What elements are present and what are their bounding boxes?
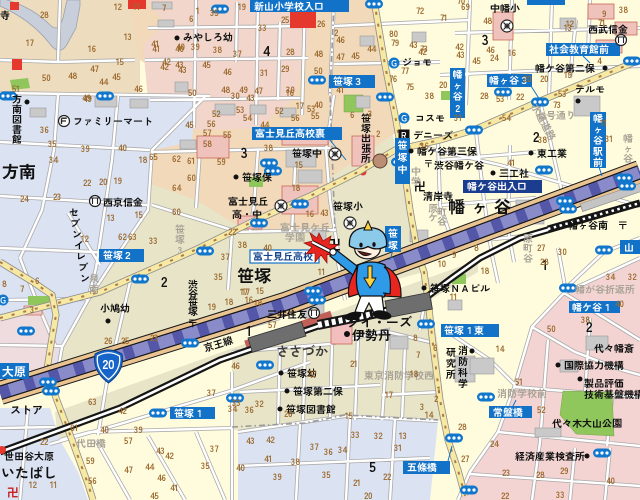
svg-text:44: 44: [145, 460, 154, 473]
svg-text:43: 43: [175, 58, 184, 71]
svg-text:15: 15: [295, 158, 303, 171]
svg-text:42: 42: [118, 404, 127, 417]
svg-text:71: 71: [440, 11, 447, 24]
svg-text:17: 17: [296, 99, 304, 112]
svg-text:原ケ町谷: 原ケ町谷: [428, 200, 448, 228]
svg-text:笹塚中: 笹塚中: [397, 137, 408, 176]
svg-text:25: 25: [121, 334, 129, 347]
svg-text:40: 40: [615, 297, 624, 310]
svg-text:34: 34: [606, 270, 615, 283]
svg-text:18: 18: [410, 367, 418, 380]
svg-text:五條橋: 五條橋: [407, 459, 438, 474]
svg-text:18: 18: [481, 264, 489, 277]
svg-text:G: G: [0, 294, 6, 307]
svg-text:44: 44: [367, 42, 376, 55]
svg-text:6: 6: [35, 274, 39, 287]
svg-text:6: 6: [350, 108, 354, 121]
svg-text:8: 8: [474, 241, 479, 254]
svg-text:5: 5: [369, 457, 376, 477]
svg-text:40: 40: [606, 474, 615, 487]
svg-text:38: 38: [238, 238, 247, 251]
svg-text:48: 48: [221, 83, 230, 96]
svg-text:31: 31: [260, 66, 268, 79]
svg-text:40: 40: [176, 40, 185, 53]
svg-text:東京消防学校西: 東京消防学校西: [363, 367, 434, 382]
svg-text:42: 42: [418, 45, 427, 58]
svg-text:ストア: ストア: [10, 402, 43, 418]
svg-text:笹塚第二保: 笹塚第二保: [293, 383, 344, 398]
svg-text:36: 36: [245, 403, 254, 416]
svg-text:35: 35: [214, 270, 223, 283]
svg-text:55: 55: [223, 128, 231, 141]
svg-text:幡ヶ谷: 幡ヶ谷: [448, 193, 517, 218]
svg-text:代々幡斎: 代々幡斎: [594, 340, 635, 355]
svg-text:笹塚保: 笹塚保: [242, 169, 273, 184]
svg-text:48: 48: [68, 69, 77, 82]
svg-text:幡ケ谷出入口: 幡ケ谷出入口: [467, 178, 527, 193]
svg-text:43: 43: [156, 444, 165, 457]
svg-text:笹塚１東: 笹塚１東: [444, 322, 484, 337]
svg-text:17: 17: [385, 388, 393, 401]
svg-text:37: 37: [310, 440, 318, 453]
svg-text:22: 22: [308, 367, 316, 380]
svg-text:51: 51: [515, 375, 523, 388]
svg-text:30: 30: [231, 89, 240, 102]
svg-text:57: 57: [268, 318, 276, 331]
svg-text:20: 20: [540, 72, 549, 85]
svg-text:63: 63: [88, 395, 97, 408]
svg-text:世田谷大原: 世田谷大原: [4, 448, 54, 463]
svg-text:〒: 〒: [424, 157, 433, 170]
svg-text:方南図書館: 方南図書館: [11, 91, 22, 146]
svg-text:44: 44: [260, 118, 269, 131]
svg-text:31: 31: [454, 111, 462, 124]
svg-text:42: 42: [162, 55, 171, 68]
svg-text:原町谷: 原町谷: [523, 230, 534, 265]
svg-text:15: 15: [256, 284, 264, 297]
svg-text:34: 34: [49, 153, 58, 166]
svg-text:47: 47: [254, 84, 262, 97]
svg-text:39: 39: [191, 40, 200, 53]
svg-text:国際協力機構: 国際協力機構: [564, 357, 624, 372]
svg-text:36: 36: [420, 139, 429, 152]
svg-text:学園: 学園: [285, 229, 305, 244]
svg-text:38: 38: [264, 141, 273, 154]
svg-text:75: 75: [406, 80, 414, 93]
svg-text:18: 18: [225, 295, 233, 308]
svg-text:47: 47: [90, 62, 98, 75]
svg-text:40: 40: [263, 241, 272, 254]
svg-text:32: 32: [255, 397, 263, 410]
svg-text:46: 46: [336, 33, 345, 46]
svg-text:39: 39: [81, 142, 90, 155]
svg-text:28: 28: [286, 45, 295, 58]
svg-text:28: 28: [536, 468, 545, 481]
svg-text:18: 18: [139, 153, 147, 166]
svg-text:33: 33: [556, 488, 565, 500]
svg-text:47: 47: [336, 50, 344, 63]
svg-text:41: 41: [151, 37, 159, 50]
svg-text:37: 37: [233, 47, 241, 60]
svg-text:45: 45: [150, 489, 159, 500]
svg-text:12: 12: [81, 232, 89, 245]
svg-text:54: 54: [243, 111, 252, 124]
svg-text:62: 62: [118, 230, 127, 243]
svg-text:43: 43: [246, 434, 255, 447]
svg-text:9: 9: [602, 7, 606, 20]
svg-text:38: 38: [619, 3, 628, 16]
svg-text:42: 42: [165, 449, 174, 462]
svg-text:新山小学校入口: 新山小学校入口: [254, 0, 324, 13]
svg-text:27: 27: [461, 452, 469, 465]
svg-text:39: 39: [273, 470, 282, 483]
svg-text:笹塚図書館: 笹塚図書館: [286, 401, 336, 416]
svg-text:ささづか: ささづか: [276, 341, 328, 360]
svg-text:40: 40: [314, 98, 323, 111]
svg-text:20: 20: [364, 489, 373, 500]
svg-text:西武信金: 西武信金: [588, 21, 628, 36]
svg-text:43: 43: [246, 91, 255, 104]
svg-text:代田橋: 代田橋: [76, 435, 107, 450]
svg-text:33: 33: [258, 21, 267, 34]
svg-text:4: 4: [263, 41, 271, 61]
svg-text:幡ケ谷１: 幡ケ谷１: [572, 299, 612, 314]
svg-text:35: 35: [48, 137, 57, 150]
svg-text:72: 72: [416, 4, 424, 17]
svg-text:中学: 中学: [411, 163, 421, 188]
svg-text:17: 17: [26, 36, 34, 49]
svg-text:40: 40: [100, 423, 109, 436]
svg-text:12: 12: [29, 478, 37, 491]
svg-text:18: 18: [254, 296, 262, 309]
svg-text:76: 76: [389, 72, 397, 85]
svg-text:19: 19: [114, 174, 122, 187]
svg-text:38: 38: [425, 89, 434, 102]
svg-text:3: 3: [420, 400, 424, 413]
svg-text:22: 22: [383, 470, 391, 483]
svg-text:16: 16: [286, 86, 294, 99]
svg-text:中幡小: 中幡小: [490, 0, 521, 15]
svg-text:37: 37: [207, 386, 215, 399]
svg-text:G: G: [401, 112, 407, 125]
svg-text:技術基盤機構: 技術基盤機構: [584, 386, 640, 401]
svg-text:経済産業検査所: 経済産業検査所: [515, 448, 585, 463]
svg-text:7: 7: [20, 282, 24, 295]
svg-text:33: 33: [149, 234, 158, 247]
svg-text:42: 42: [266, 433, 275, 446]
svg-text:56: 56: [291, 111, 300, 124]
svg-text:36: 36: [324, 445, 333, 458]
svg-text:39: 39: [134, 423, 143, 436]
svg-text:卍: 卍: [7, 484, 19, 500]
svg-text:50: 50: [547, 322, 556, 335]
svg-text:41: 41: [336, 83, 344, 96]
svg-text:21: 21: [353, 476, 361, 489]
svg-text:50: 50: [314, 64, 323, 77]
svg-text:52: 52: [537, 403, 545, 416]
svg-text:46: 46: [134, 82, 143, 95]
svg-text:22: 22: [516, 90, 524, 103]
svg-text:20: 20: [439, 78, 448, 91]
svg-text:19: 19: [564, 68, 572, 81]
svg-text:研究所: 研究所: [446, 344, 457, 381]
svg-text:8: 8: [413, 331, 418, 344]
svg-text:30: 30: [558, 245, 567, 258]
svg-text:21: 21: [350, 357, 358, 370]
svg-text:13: 13: [107, 211, 115, 224]
svg-text:6: 6: [433, 341, 437, 354]
svg-text:高・中: 高・中: [232, 206, 262, 221]
svg-text:51: 51: [12, 82, 20, 95]
svg-text:方南: 方南: [2, 158, 36, 183]
svg-text:笹塚: 笹塚: [237, 262, 272, 287]
svg-text:47: 47: [124, 463, 132, 476]
svg-text:11: 11: [50, 478, 57, 491]
svg-text:幡が谷折返所: 幡が谷折返所: [575, 281, 635, 296]
svg-text:53: 53: [558, 87, 567, 100]
svg-text:46: 46: [223, 65, 232, 78]
svg-text:G: G: [391, 57, 397, 70]
svg-text:53: 53: [496, 92, 505, 105]
svg-text:32: 32: [628, 270, 636, 283]
svg-text:41: 41: [507, 156, 515, 169]
svg-text:デニーズ: デニーズ: [413, 127, 453, 142]
svg-text:57: 57: [124, 434, 132, 447]
svg-text:3: 3: [30, 303, 34, 316]
svg-text:35: 35: [210, 6, 219, 19]
svg-text:7: 7: [162, 1, 166, 14]
svg-text:50: 50: [188, 86, 197, 99]
svg-text:77: 77: [401, 64, 409, 77]
svg-text:西京信金: 西京信金: [103, 194, 143, 209]
svg-text:27: 27: [537, 241, 545, 254]
svg-text:46: 46: [231, 359, 240, 372]
svg-text:笹塚小: 笹塚小: [333, 198, 364, 213]
svg-text:29: 29: [560, 464, 568, 477]
svg-text:37: 37: [210, 442, 218, 455]
svg-text:26: 26: [317, 17, 326, 30]
svg-text:36: 36: [40, 123, 49, 136]
svg-text:2: 2: [376, 127, 380, 140]
svg-text:2: 2: [434, 392, 438, 405]
svg-text:38: 38: [581, 313, 590, 326]
svg-text:28: 28: [458, 420, 467, 433]
svg-text:16: 16: [306, 207, 314, 220]
svg-text:11: 11: [600, 116, 607, 129]
svg-text:11: 11: [133, 0, 140, 13]
svg-text:59: 59: [217, 155, 226, 168]
svg-text:23: 23: [502, 466, 510, 479]
svg-text:25: 25: [281, 13, 289, 26]
svg-text:46: 46: [486, 43, 495, 56]
svg-text:45: 45: [185, 118, 194, 131]
svg-text:7: 7: [416, 348, 420, 361]
svg-text:43: 43: [456, 48, 465, 61]
svg-text:4: 4: [597, 54, 602, 67]
svg-text:20: 20: [99, 175, 108, 188]
svg-text:3: 3: [241, 143, 248, 163]
svg-text:40: 40: [118, 141, 127, 154]
svg-text:28: 28: [480, 89, 489, 102]
svg-text:16: 16: [508, 46, 516, 59]
svg-text:58: 58: [203, 137, 212, 150]
svg-text:31: 31: [394, 441, 402, 454]
svg-text:32: 32: [374, 429, 382, 442]
svg-text:61: 61: [70, 421, 78, 434]
svg-text:45: 45: [472, 54, 481, 67]
svg-text:24: 24: [20, 192, 29, 205]
svg-text:65: 65: [149, 150, 158, 163]
svg-text:37: 37: [221, 250, 229, 263]
svg-text:50: 50: [42, 71, 51, 84]
svg-text:60: 60: [187, 171, 196, 184]
svg-text:52: 52: [275, 104, 283, 117]
svg-text:60: 60: [172, 205, 181, 218]
svg-text:11: 11: [318, 265, 325, 278]
svg-text:23: 23: [150, 331, 158, 344]
svg-text:9: 9: [452, 248, 456, 261]
svg-text:79: 79: [391, 36, 399, 49]
svg-text:14: 14: [425, 408, 434, 421]
svg-text:44: 44: [99, 75, 108, 88]
svg-text:12: 12: [114, 0, 122, 13]
svg-text:山: 山: [624, 239, 634, 254]
svg-text:22: 22: [83, 176, 91, 189]
svg-text:45: 45: [351, 49, 360, 62]
svg-text:35: 35: [201, 459, 210, 472]
svg-text:泉南: 泉南: [89, 270, 99, 296]
svg-text:笹塚１: 笹塚１: [174, 405, 204, 420]
svg-text:コスモ: コスモ: [415, 110, 445, 125]
svg-text:26: 26: [284, 407, 293, 420]
svg-text:28: 28: [40, 8, 49, 21]
svg-text:61: 61: [187, 154, 195, 167]
svg-text:59: 59: [86, 454, 95, 467]
svg-text:13: 13: [124, 30, 132, 43]
svg-text:40: 40: [236, 461, 245, 474]
svg-text:34: 34: [338, 443, 347, 456]
svg-text:33: 33: [351, 428, 360, 441]
svg-text:笹塚: 笹塚: [387, 225, 398, 252]
svg-text:15: 15: [135, 208, 143, 221]
svg-text:15: 15: [345, 409, 353, 422]
svg-text:29: 29: [281, 62, 289, 75]
svg-text:小鳩幼: 小鳩幼: [100, 300, 130, 315]
svg-text:代々木大山公園: 代々木大山公園: [552, 415, 622, 430]
svg-text:8: 8: [2, 277, 7, 290]
svg-text:笹塚２: 笹塚２: [103, 247, 133, 262]
svg-text:11: 11: [450, 290, 457, 303]
svg-text:16: 16: [88, 42, 96, 55]
svg-text:23: 23: [53, 190, 61, 203]
svg-text:3: 3: [368, 107, 372, 120]
svg-text:46: 46: [157, 471, 166, 484]
svg-text:22: 22: [40, 435, 48, 448]
svg-text:54: 54: [502, 111, 511, 124]
svg-text:2: 2: [161, 272, 168, 292]
svg-text:19: 19: [238, 0, 246, 13]
svg-text:35: 35: [322, 468, 331, 481]
svg-text:18: 18: [292, 181, 300, 194]
svg-text:笹塚ＮＡビル: 笹塚ＮＡビル: [430, 280, 490, 295]
svg-text:6: 6: [189, 12, 193, 25]
svg-text:幡ヶ谷南 〒: 幡ヶ谷南 〒: [568, 217, 628, 232]
svg-text:テルモ: テルモ: [575, 81, 605, 96]
svg-text:41: 41: [264, 452, 272, 465]
svg-text:38: 38: [538, 133, 547, 146]
svg-text:19: 19: [208, 300, 216, 313]
svg-text:22: 22: [501, 489, 509, 500]
svg-text:64: 64: [172, 181, 181, 194]
svg-text:69: 69: [461, 0, 470, 13]
svg-text:34: 34: [228, 402, 237, 415]
svg-text:20: 20: [523, 72, 532, 85]
svg-text:常盤橋: 常盤橋: [493, 404, 524, 419]
svg-text:10: 10: [438, 257, 446, 270]
svg-text:寺: 寺: [0, 7, 10, 22]
svg-text:伊勢丹: 伊勢丹: [352, 325, 391, 344]
svg-text:渋谷笹塚〒: 渋谷笹塚〒: [187, 276, 199, 330]
svg-text:45: 45: [202, 58, 211, 71]
svg-text:13: 13: [564, 21, 572, 34]
svg-text:1: 1: [246, 321, 252, 341]
svg-text:38: 38: [291, 455, 300, 468]
svg-text:幡ヶ谷: 幡ヶ谷: [623, 130, 634, 165]
svg-text:43: 43: [409, 38, 418, 51]
svg-text:48: 48: [483, 14, 492, 27]
svg-text:大原: 大原: [2, 363, 26, 380]
svg-text:消防科学: 消防科学: [458, 342, 468, 390]
svg-text:22: 22: [228, 225, 236, 238]
svg-text:富士見丘高校: 富士見丘高校: [253, 248, 313, 263]
svg-text:20: 20: [102, 354, 115, 373]
svg-text:16: 16: [245, 293, 253, 306]
svg-text:43: 43: [320, 206, 329, 219]
svg-text:56: 56: [88, 474, 97, 487]
svg-text:ファミリーマート: ファミリーマート: [73, 113, 153, 128]
svg-text:26: 26: [104, 334, 113, 347]
svg-text:14: 14: [496, 342, 505, 355]
svg-text:1: 1: [196, 4, 200, 17]
svg-text:31: 31: [605, 132, 613, 145]
svg-text:45: 45: [112, 70, 121, 83]
svg-text:63: 63: [128, 230, 137, 243]
svg-text:62: 62: [172, 152, 181, 165]
svg-text:41: 41: [170, 481, 178, 494]
svg-text:24: 24: [490, 437, 499, 450]
svg-text:渋谷幡ケ谷: 渋谷幡ケ谷: [434, 157, 485, 172]
svg-text:49: 49: [83, 92, 92, 105]
svg-text:東工業: 東工業: [536, 145, 567, 160]
svg-text:38: 38: [213, 43, 222, 56]
svg-text:48: 48: [314, 47, 323, 60]
svg-text:28: 28: [540, 255, 549, 268]
svg-text:15: 15: [116, 55, 124, 68]
